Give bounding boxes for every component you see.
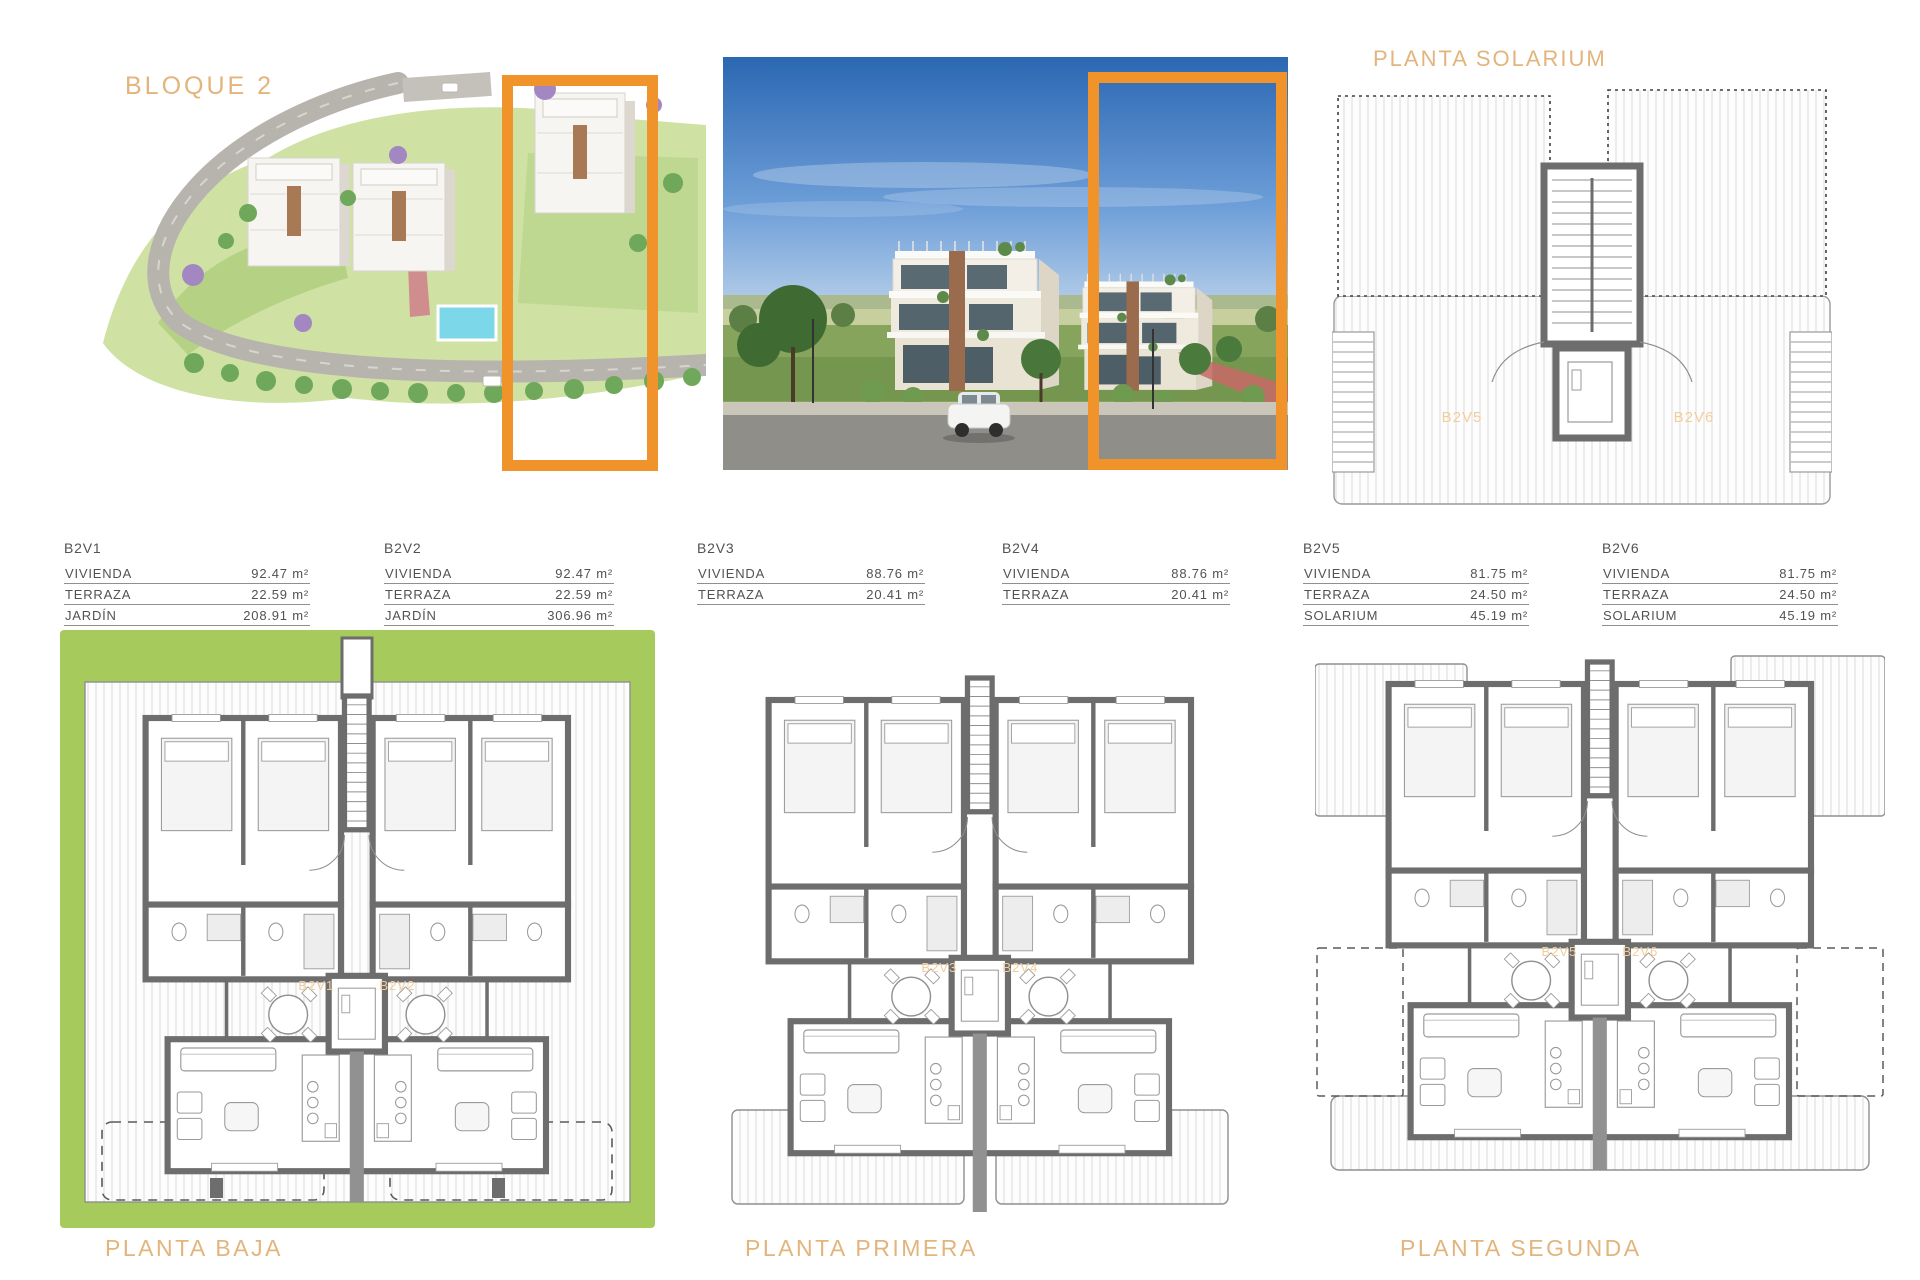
unit-name: B2V3 xyxy=(697,540,925,556)
spec-value: 22.59 m² xyxy=(251,587,309,602)
brochure-page: BLOQUE 2 PLANTA SOLARIUM xyxy=(0,0,1920,1280)
spec-label: VIVIENDA xyxy=(1003,566,1070,581)
unit-name: B2V6 xyxy=(1602,540,1838,556)
unit-spec-table-b2v1: B2V1 VIVIENDA92.47 m² TERRAZA22.59 m² JA… xyxy=(64,540,310,626)
spec-label: SOLARIUM xyxy=(1603,608,1677,623)
spec-label: VIVIENDA xyxy=(65,566,132,581)
planta-baja-plan: B2V1B2V2 xyxy=(60,630,655,1230)
unit-name: B2V1 xyxy=(64,540,310,556)
spec-label: TERRAZA xyxy=(698,587,764,602)
spec-row: TERRAZA24.50 m² xyxy=(1602,584,1838,605)
spec-value: 45.19 m² xyxy=(1779,608,1837,623)
plan-unit-label: B2V5 xyxy=(1541,944,1577,959)
spec-row: VIVIENDA81.75 m² xyxy=(1303,563,1529,584)
building-block-left xyxy=(248,158,350,266)
unit-spec-table-b2v4: B2V4 VIVIENDA88.76 m² TERRAZA20.41 m² xyxy=(1002,540,1230,605)
spec-row: VIVIENDA88.76 m² xyxy=(1002,563,1230,584)
spec-row: TERRAZA24.50 m² xyxy=(1303,584,1529,605)
unit-name: B2V2 xyxy=(384,540,614,556)
building-highlight-box-photo xyxy=(1088,72,1287,470)
plan-unit-label: B2V6 xyxy=(1622,944,1658,959)
plan-unit-label: B2V3 xyxy=(921,960,957,975)
unit-spec-table-b2v3: B2V3 VIVIENDA88.76 m² TERRAZA20.41 m² xyxy=(697,540,925,605)
spec-value: 81.75 m² xyxy=(1470,566,1528,581)
spec-label: TERRAZA xyxy=(385,587,451,602)
spec-row: SOLARIUM45.19 m² xyxy=(1602,605,1838,626)
spec-value: 306.96 m² xyxy=(547,608,613,623)
spec-label: JARDÍN xyxy=(65,608,117,623)
spec-value: 45.19 m² xyxy=(1470,608,1528,623)
spec-row: VIVIENDA92.47 m² xyxy=(384,563,614,584)
spec-label: VIVIENDA xyxy=(698,566,765,581)
spec-label: JARDÍN xyxy=(385,608,437,623)
spec-row: TERRAZA22.59 m² xyxy=(384,584,614,605)
unit-spec-table-b2v2: B2V2 VIVIENDA92.47 m² TERRAZA22.59 m² JA… xyxy=(384,540,614,626)
spec-value: 20.41 m² xyxy=(1171,587,1229,602)
spec-row: TERRAZA20.41 m² xyxy=(697,584,925,605)
spec-value: 92.47 m² xyxy=(251,566,309,581)
planta-primera-plan: B2V3B2V4 xyxy=(720,672,1240,1212)
spec-row: SOLARIUM45.19 m² xyxy=(1303,605,1529,626)
spec-row: TERRAZA22.59 m² xyxy=(64,584,310,605)
spec-value: 88.76 m² xyxy=(1171,566,1229,581)
planta-segunda-plan: B2V5B2V6 xyxy=(1315,650,1885,1180)
spec-value: 92.47 m² xyxy=(555,566,613,581)
spec-label: VIVIENDA xyxy=(1603,566,1670,581)
spec-value: 20.41 m² xyxy=(866,587,924,602)
plan-unit-label: B2V2 xyxy=(379,978,415,993)
spec-label: SOLARIUM xyxy=(1304,608,1378,623)
spec-label: VIVIENDA xyxy=(1304,566,1371,581)
spec-label: TERRAZA xyxy=(1003,587,1069,602)
spec-label: VIVIENDA xyxy=(385,566,452,581)
spec-value: 208.91 m² xyxy=(243,608,309,623)
spec-value: 22.59 m² xyxy=(555,587,613,602)
spec-label: TERRAZA xyxy=(1304,587,1370,602)
building-block-middle xyxy=(353,163,455,271)
spec-label: TERRAZA xyxy=(1603,587,1669,602)
spec-row: TERRAZA20.41 m² xyxy=(1002,584,1230,605)
unit-spec-table-b2v6: B2V6 VIVIENDA81.75 m² TERRAZA24.50 m² SO… xyxy=(1602,540,1838,626)
unit-name: B2V4 xyxy=(1002,540,1230,556)
spec-value: 24.50 m² xyxy=(1470,587,1528,602)
unit-spec-table-b2v5: B2V5 VIVIENDA81.75 m² TERRAZA24.50 m² SO… xyxy=(1303,540,1529,626)
unit-name: B2V5 xyxy=(1303,540,1529,556)
building-highlight-box-aerial xyxy=(502,75,658,471)
floor-label-baja: PLANTA BAJA xyxy=(105,1235,283,1262)
spec-label: TERRAZA xyxy=(65,587,131,602)
floor-label-segunda: PLANTA SEGUNDA xyxy=(1400,1235,1642,1262)
solarium-floor-plan: B2V5B2V6 xyxy=(1332,80,1832,508)
spec-row: VIVIENDA81.75 m² xyxy=(1602,563,1838,584)
spec-row: JARDÍN208.91 m² xyxy=(64,605,310,626)
spec-row: VIVIENDA92.47 m² xyxy=(64,563,310,584)
floor-label-primera: PLANTA PRIMERA xyxy=(745,1235,978,1262)
plan-unit-label: B2V1 xyxy=(298,978,334,993)
spec-value: 24.50 m² xyxy=(1779,587,1837,602)
spec-row: VIVIENDA88.76 m² xyxy=(697,563,925,584)
spec-value: 88.76 m² xyxy=(866,566,924,581)
plan-unit-label: B2V4 xyxy=(1002,960,1038,975)
plan-unit-label: B2V6 xyxy=(1674,409,1715,426)
solarium-title: PLANTA SOLARIUM xyxy=(1373,46,1607,72)
spec-value: 81.75 m² xyxy=(1779,566,1837,581)
spec-row: JARDÍN306.96 m² xyxy=(384,605,614,626)
plan-unit-label: B2V5 xyxy=(1442,409,1483,426)
